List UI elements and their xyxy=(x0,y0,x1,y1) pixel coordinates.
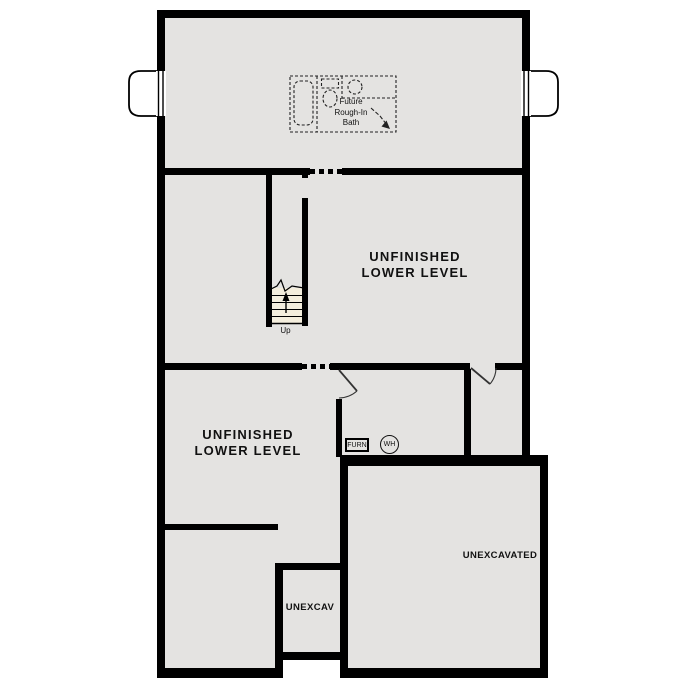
wall-stair-right xyxy=(302,198,308,326)
wall-north-divider-east xyxy=(342,168,530,175)
wall-unexcav-small-left xyxy=(275,563,283,678)
wall-exterior-bottom-left xyxy=(157,668,283,678)
exterior-notch xyxy=(283,660,340,687)
wall-exterior-left xyxy=(157,10,165,678)
wall-unexcav-small-bottom xyxy=(283,652,347,660)
wall-storage-divider xyxy=(464,369,471,457)
wall-unexcavated-right xyxy=(540,455,548,678)
wall-stair-right-stub xyxy=(302,172,308,178)
future-bath-label: Future Rough-In Bath xyxy=(321,97,381,129)
future-bath-label-line: Bath xyxy=(321,118,381,129)
future-bath-label-line: Rough-In xyxy=(321,108,381,119)
wall-unexcavated-bottom xyxy=(340,668,548,678)
water-heater-symbol: WH xyxy=(380,435,399,454)
wall-south-divider-west xyxy=(157,363,302,370)
room-label-unfinished-north: UNFINISHED LOWER LEVEL xyxy=(340,249,490,280)
floor-unexcavated-large xyxy=(340,455,548,678)
room-label-line: UNFINISHED xyxy=(173,427,323,443)
wall-exterior-right xyxy=(522,10,530,458)
room-label-line: UNFINISHED xyxy=(340,249,490,265)
wall-north-divider-west xyxy=(157,168,310,175)
room-label-line: LOWER LEVEL xyxy=(173,443,323,459)
room-label-line: LOWER LEVEL xyxy=(340,265,490,281)
wall-stair-left xyxy=(266,172,272,327)
wall-unexcavated-top xyxy=(340,455,548,466)
future-bath-label-line: Future xyxy=(321,97,381,108)
stairs-up-label: Up xyxy=(275,326,296,337)
wall-south-divider-center xyxy=(330,363,470,370)
wall-south-divider-east xyxy=(495,363,530,370)
window-well-left xyxy=(129,71,157,116)
wall-furnace-room-left xyxy=(336,399,342,457)
floor-plan-canvas: UNFINISHED LOWER LEVEL UNFINISHED LOWER … xyxy=(0,0,687,687)
window-well-right xyxy=(530,71,558,116)
room-label-unexcavated-large: UNEXCAVATED xyxy=(440,551,560,561)
wall-partial-southwest xyxy=(165,524,278,530)
wall-unexcav-small-top xyxy=(275,563,347,570)
furnace-symbol: FURN xyxy=(345,438,369,452)
wall-exterior-top xyxy=(157,10,530,18)
room-label-unexcav-small: UNEXCAV xyxy=(280,603,340,613)
room-label-unfinished-southwest: UNFINISHED LOWER LEVEL xyxy=(173,427,323,458)
